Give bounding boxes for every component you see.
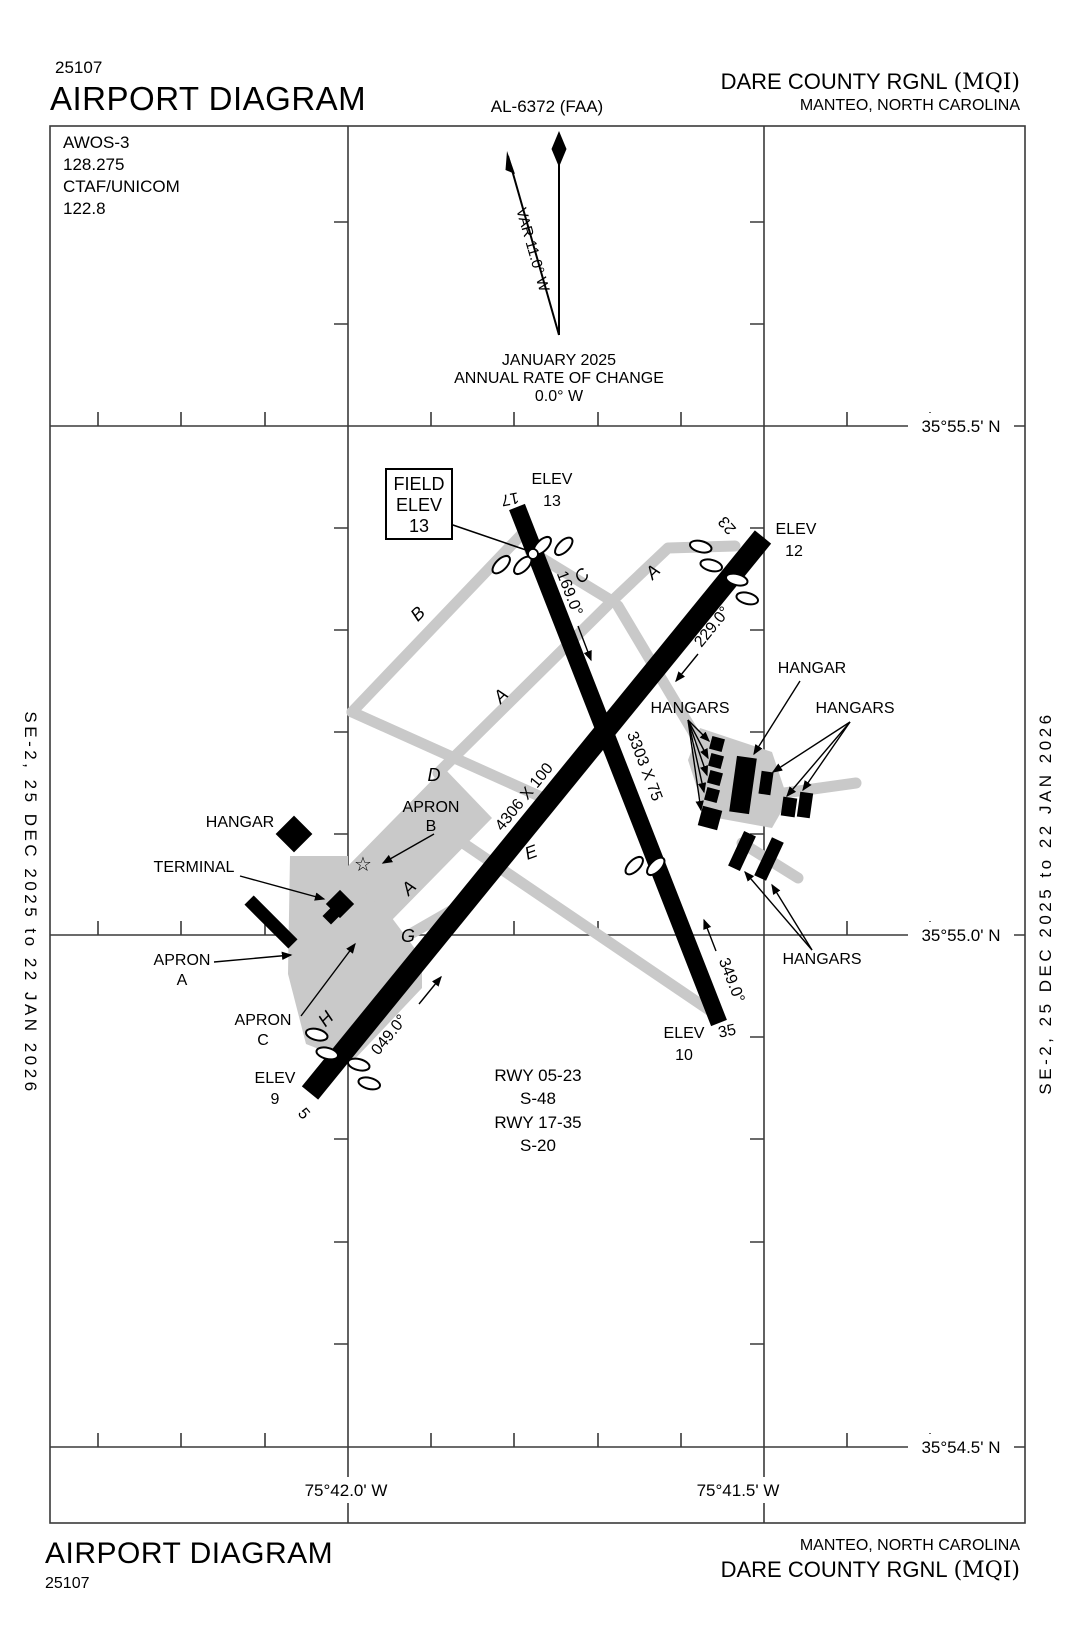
ctaf-label: CTAF/UNICOM (63, 177, 180, 196)
rwy-data-line4: S-20 (520, 1136, 556, 1155)
footer-airport-name-text: DARE COUNTY RGNL (721, 1557, 948, 1582)
field-elev-line3: 13 (409, 516, 429, 536)
apron-c-label: APRON (235, 1012, 292, 1029)
runway-23-heading-arrow (676, 654, 698, 681)
hangars-arrow (772, 885, 812, 950)
longitude-ticks-row3 (98, 1433, 930, 1447)
airport-icao: (MQI) (954, 70, 1020, 95)
apron-b-letter: B (426, 818, 437, 835)
plate-code: 25107 (55, 58, 102, 77)
airport-diagram-page: 25107 AIRPORT DIAGRAM AL-6372 (FAA) DARE… (0, 0, 1076, 1650)
hangar-west-building (276, 816, 313, 853)
variation-label: VAR 11.0° W (512, 206, 552, 294)
lat-label-2: 35°55.0' N (921, 926, 1000, 945)
footer-title: AIRPORT DIAGRAM (45, 1537, 333, 1570)
apron-b-label: APRON (403, 799, 460, 816)
field-elev-line2: ELEV (396, 495, 442, 515)
hangars-arrow (773, 722, 850, 772)
true-north-arrowhead-icon (552, 131, 567, 167)
elev-23-value: 12 (785, 543, 803, 560)
hangars-arrow (745, 872, 812, 950)
elev-17-value: 13 (543, 493, 561, 510)
elev-35-label: ELEV (664, 1025, 705, 1042)
airport-name-text: DARE COUNTY RGNL (721, 69, 948, 94)
terminal-label: TERMINAL (154, 859, 235, 876)
hangars-right-label: HANGARS (815, 700, 894, 717)
runway-05-heading-arrow (419, 977, 441, 1004)
apron-c-letter: C (257, 1032, 269, 1049)
lat-label-3: 35°54.5' N (921, 1438, 1000, 1457)
chart-id: AL-6372 (FAA) (491, 97, 603, 116)
taxiway-label-g: G (401, 926, 415, 946)
runway-35-heading: 349.0° (715, 956, 748, 1005)
airport-name: DARE COUNTY RGNL(MQI) (721, 69, 1020, 95)
field-elev-point-icon (528, 549, 538, 559)
hangar-ne-arrow (754, 681, 800, 754)
apron-a-letter: A (177, 972, 188, 989)
taxiway-label-d: D (428, 765, 441, 785)
awos-label: AWOS-3 (63, 133, 129, 152)
lon-label-2: 75°41.5' W (697, 1481, 780, 1500)
magnetic-north-barb-icon (506, 151, 516, 174)
airport-city: MANTEO, NORTH CAROLINA (800, 97, 1021, 114)
apron-a-arrow (214, 955, 291, 962)
airport-diagram-chart: 25107 AIRPORT DIAGRAM AL-6372 (FAA) DARE… (0, 0, 1076, 1650)
runway-05-23 (310, 537, 763, 1093)
hangar-west-label: HANGAR (206, 814, 274, 831)
runway-number-17: 17 (499, 488, 520, 508)
hangar-ne-label: HANGAR (778, 660, 846, 677)
lon-label-1: 75°42.0' W (305, 1481, 388, 1500)
page-title: AIRPORT DIAGRAM (50, 80, 366, 117)
rwy-data-line2: S-48 (520, 1089, 556, 1108)
hangars-south-label: HANGARS (782, 951, 861, 968)
runway-number-23: 23 (715, 513, 740, 538)
runway-number-5: 5 (294, 1105, 313, 1123)
side-strip-left: SE-2, 25 DEC 2025 to 22 JAN 2026 (21, 711, 40, 1094)
compass-date: JANUARY 2025 (502, 352, 616, 369)
side-strip-right: SE-2, 25 DEC 2025 to 22 JAN 2026 (1036, 711, 1055, 1094)
ctaf-freq: 122.8 (63, 199, 106, 218)
field-elev-line1: FIELD (393, 474, 444, 494)
apron-a-label: APRON (154, 952, 211, 969)
lat-label-1: 35°55.5' N (921, 417, 1000, 436)
elev-23-label: ELEV (776, 521, 817, 538)
footer-airport-name: DARE COUNTY RGNL(MQI) (721, 1557, 1020, 1583)
latitude-ticks-col1 (334, 222, 348, 1344)
hangar-building (781, 797, 798, 818)
compass-rate-label: ANNUAL RATE OF CHANGE (454, 370, 664, 387)
elev-5-label: ELEV (255, 1070, 296, 1087)
elev-17-label: ELEV (532, 471, 573, 488)
taxiway-label-e: E (522, 841, 541, 864)
footer-plate-code: 25107 (45, 1575, 90, 1592)
rwy-data-line3: RWY 17-35 (494, 1113, 581, 1132)
runway-number-35: 35 (717, 1022, 738, 1042)
longitude-ticks-row1 (98, 412, 930, 426)
taxiway-label-b: B (406, 602, 429, 625)
hangars-left-label: HANGARS (650, 700, 729, 717)
compass-rate-value: 0.0° W (535, 388, 584, 405)
awos-freq: 128.275 (63, 155, 124, 174)
footer-city: MANTEO, NORTH CAROLINA (800, 1537, 1021, 1554)
longitude-ticks-row2 (98, 921, 930, 935)
rwy-data-line1: RWY 05-23 (494, 1066, 581, 1085)
elev-5-value: 9 (271, 1091, 280, 1108)
elev-35-value: 10 (675, 1047, 693, 1064)
footer-airport-icao: (MQI) (954, 1558, 1020, 1583)
beacon-star-icon: ☆ (354, 854, 372, 876)
